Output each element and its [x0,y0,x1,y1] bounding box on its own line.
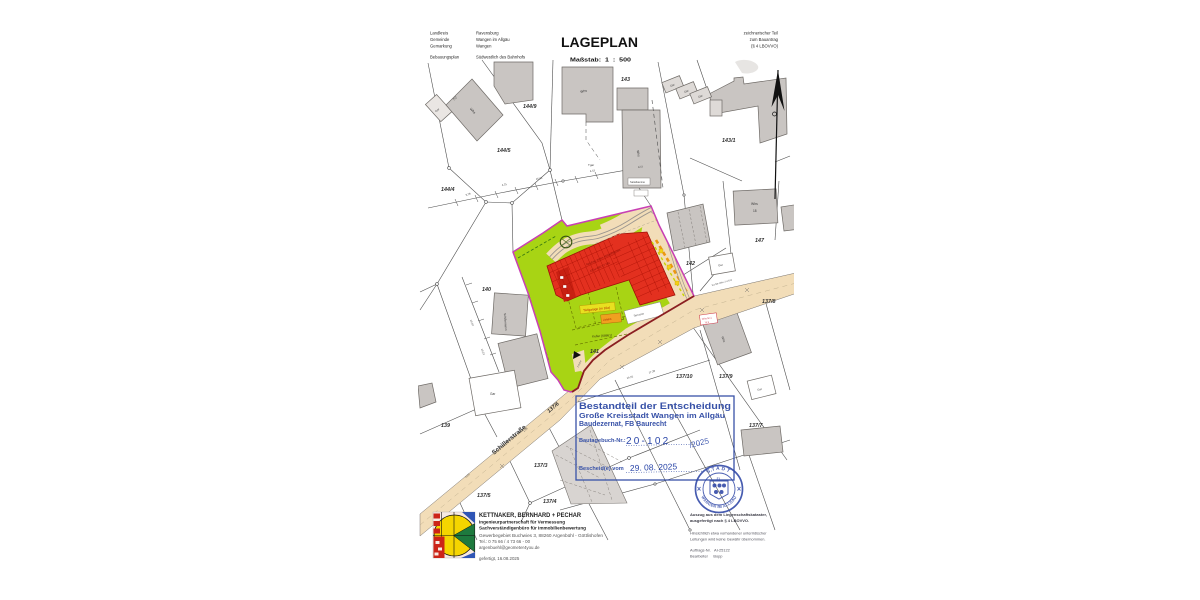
svg-text:Auftrags-Nr. AI-25122: Auftrags-Nr. AI-25122 [690,548,730,553]
svg-text:KETTNAKER, BERNHARD + PECHAR: KETTNAKER, BERNHARD + PECHAR [479,513,582,519]
svg-text:Ingenieurpartnerschaft für Ver: Ingenieurpartnerschaft für Vermessung [479,520,565,525]
svg-text:Wangen: Wangen [476,44,492,49]
svg-text:Gar: Gar [490,392,496,396]
svg-text:Whs: Whs [751,202,758,206]
svg-text:147: 147 [755,238,765,244]
svg-text:LAGEPLAN: LAGEPLAN [561,35,638,51]
svg-text:29. 08. 2025: 29. 08. 2025 [630,461,678,473]
svg-text:Wangen im Allgäu: Wangen im Allgäu [476,37,510,42]
svg-text:Gar: Gar [718,263,723,268]
svg-text:Bescheid(e) vom: Bescheid(e) vom [579,466,624,472]
svg-text:137/4: 137/4 [543,499,557,505]
svg-text:Gewerbegebiet Buchwies 3, 882: Gewerbegebiet Buchwies 3, 88260 Argenbüh… [479,533,604,538]
svg-text:ausgefertigt nach § 4 LBOVVO.: ausgefertigt nach § 4 LBOVVO. [690,518,749,523]
svg-text:Tel.: 0 75 66 / 4 73 66 - 00: Tel.: 0 75 66 / 4 73 66 - 00 [479,539,531,544]
svg-text:139: 139 [441,423,450,429]
svg-text:141: 141 [590,349,599,355]
svg-text:144/4: 144/4 [441,187,455,193]
svg-text:gefertigt, 16.08.2025: gefertigt, 16.08.2025 [479,556,520,561]
svg-text:Bestandteil der Entscheidung: Bestandteil der Entscheidung [579,400,731,411]
svg-text:137/8: 137/8 [762,299,776,305]
svg-text:zum Bauantrag: zum Bauantrag [750,37,779,42]
svg-text:137/3: 137/3 [534,463,548,469]
svg-text:21: 21 [717,477,721,481]
svg-text:Bearbeiter Bopp: Bearbeiter Bopp [690,554,722,559]
svg-text:Bautagebuch-Nr.:: Bautagebuch-Nr.: [579,438,626,444]
svg-text:Landkreis: Landkreis [430,31,448,36]
svg-text:137/7: 137/7 [749,423,763,429]
svg-text:144/9: 144/9 [523,104,537,110]
svg-text:Leitungen wird keine Gewähr üb: Leitungen wird keine Gewähr übernommen. [690,537,765,542]
svg-text:Hinsichtlich etwa vorhandener: Hinsichtlich etwa vorhandener unterirdis… [690,531,767,536]
svg-text:144/5: 144/5 [497,148,511,154]
svg-text:137/10: 137/10 [676,374,693,380]
svg-text:Südwestlich des Bahnhofs: Südwestlich des Bahnhofs [476,55,525,60]
svg-text:140: 140 [482,287,491,293]
svg-text:137/9: 137/9 [719,374,733,380]
svg-text:Ravensburg: Ravensburg [476,31,499,36]
svg-text:Tgar: Tgar [588,163,594,167]
svg-text:18: 18 [753,209,757,213]
svg-text:143/1: 143/1 [722,138,736,144]
svg-text:Sachverständigenbüro für Immob: Sachverständigenbüro für Immobilienbewer… [479,526,586,531]
svg-text:Auszug aus dem Liegenschaftska: Auszug aus dem Liegenschaftskataster, [690,512,767,517]
svg-text:Große Kreisstadt Wangen im All: Große Kreisstadt Wangen im Allgäu [579,413,725,420]
svg-text:argenbuehl@geometer4you.de: argenbuehl@geometer4you.de [479,545,540,550]
svg-text:(§ 4 LBOVVO): (§ 4 LBOVVO) [751,44,779,49]
svg-text:Gemarkung: Gemarkung [430,44,453,49]
svg-text:zeichnerischer Teil: zeichnerischer Teil [744,31,778,36]
svg-text:Maßstab: 1 : 500: Maßstab: 1 : 500 [570,58,631,64]
svg-text:Gemeinde: Gemeinde [430,37,450,42]
svg-text:142: 142 [686,261,695,267]
svg-text:143: 143 [621,77,630,83]
svg-text:Bebauungsplan: Bebauungsplan [430,55,460,60]
svg-text:Baudezernat, FB Baurecht: Baudezernat, FB Baurecht [579,421,667,428]
svg-text:20-102: 20-102 [626,436,670,447]
svg-text:Sattelkamine: Sattelkamine [630,180,646,184]
svg-text:137/5: 137/5 [477,493,491,499]
